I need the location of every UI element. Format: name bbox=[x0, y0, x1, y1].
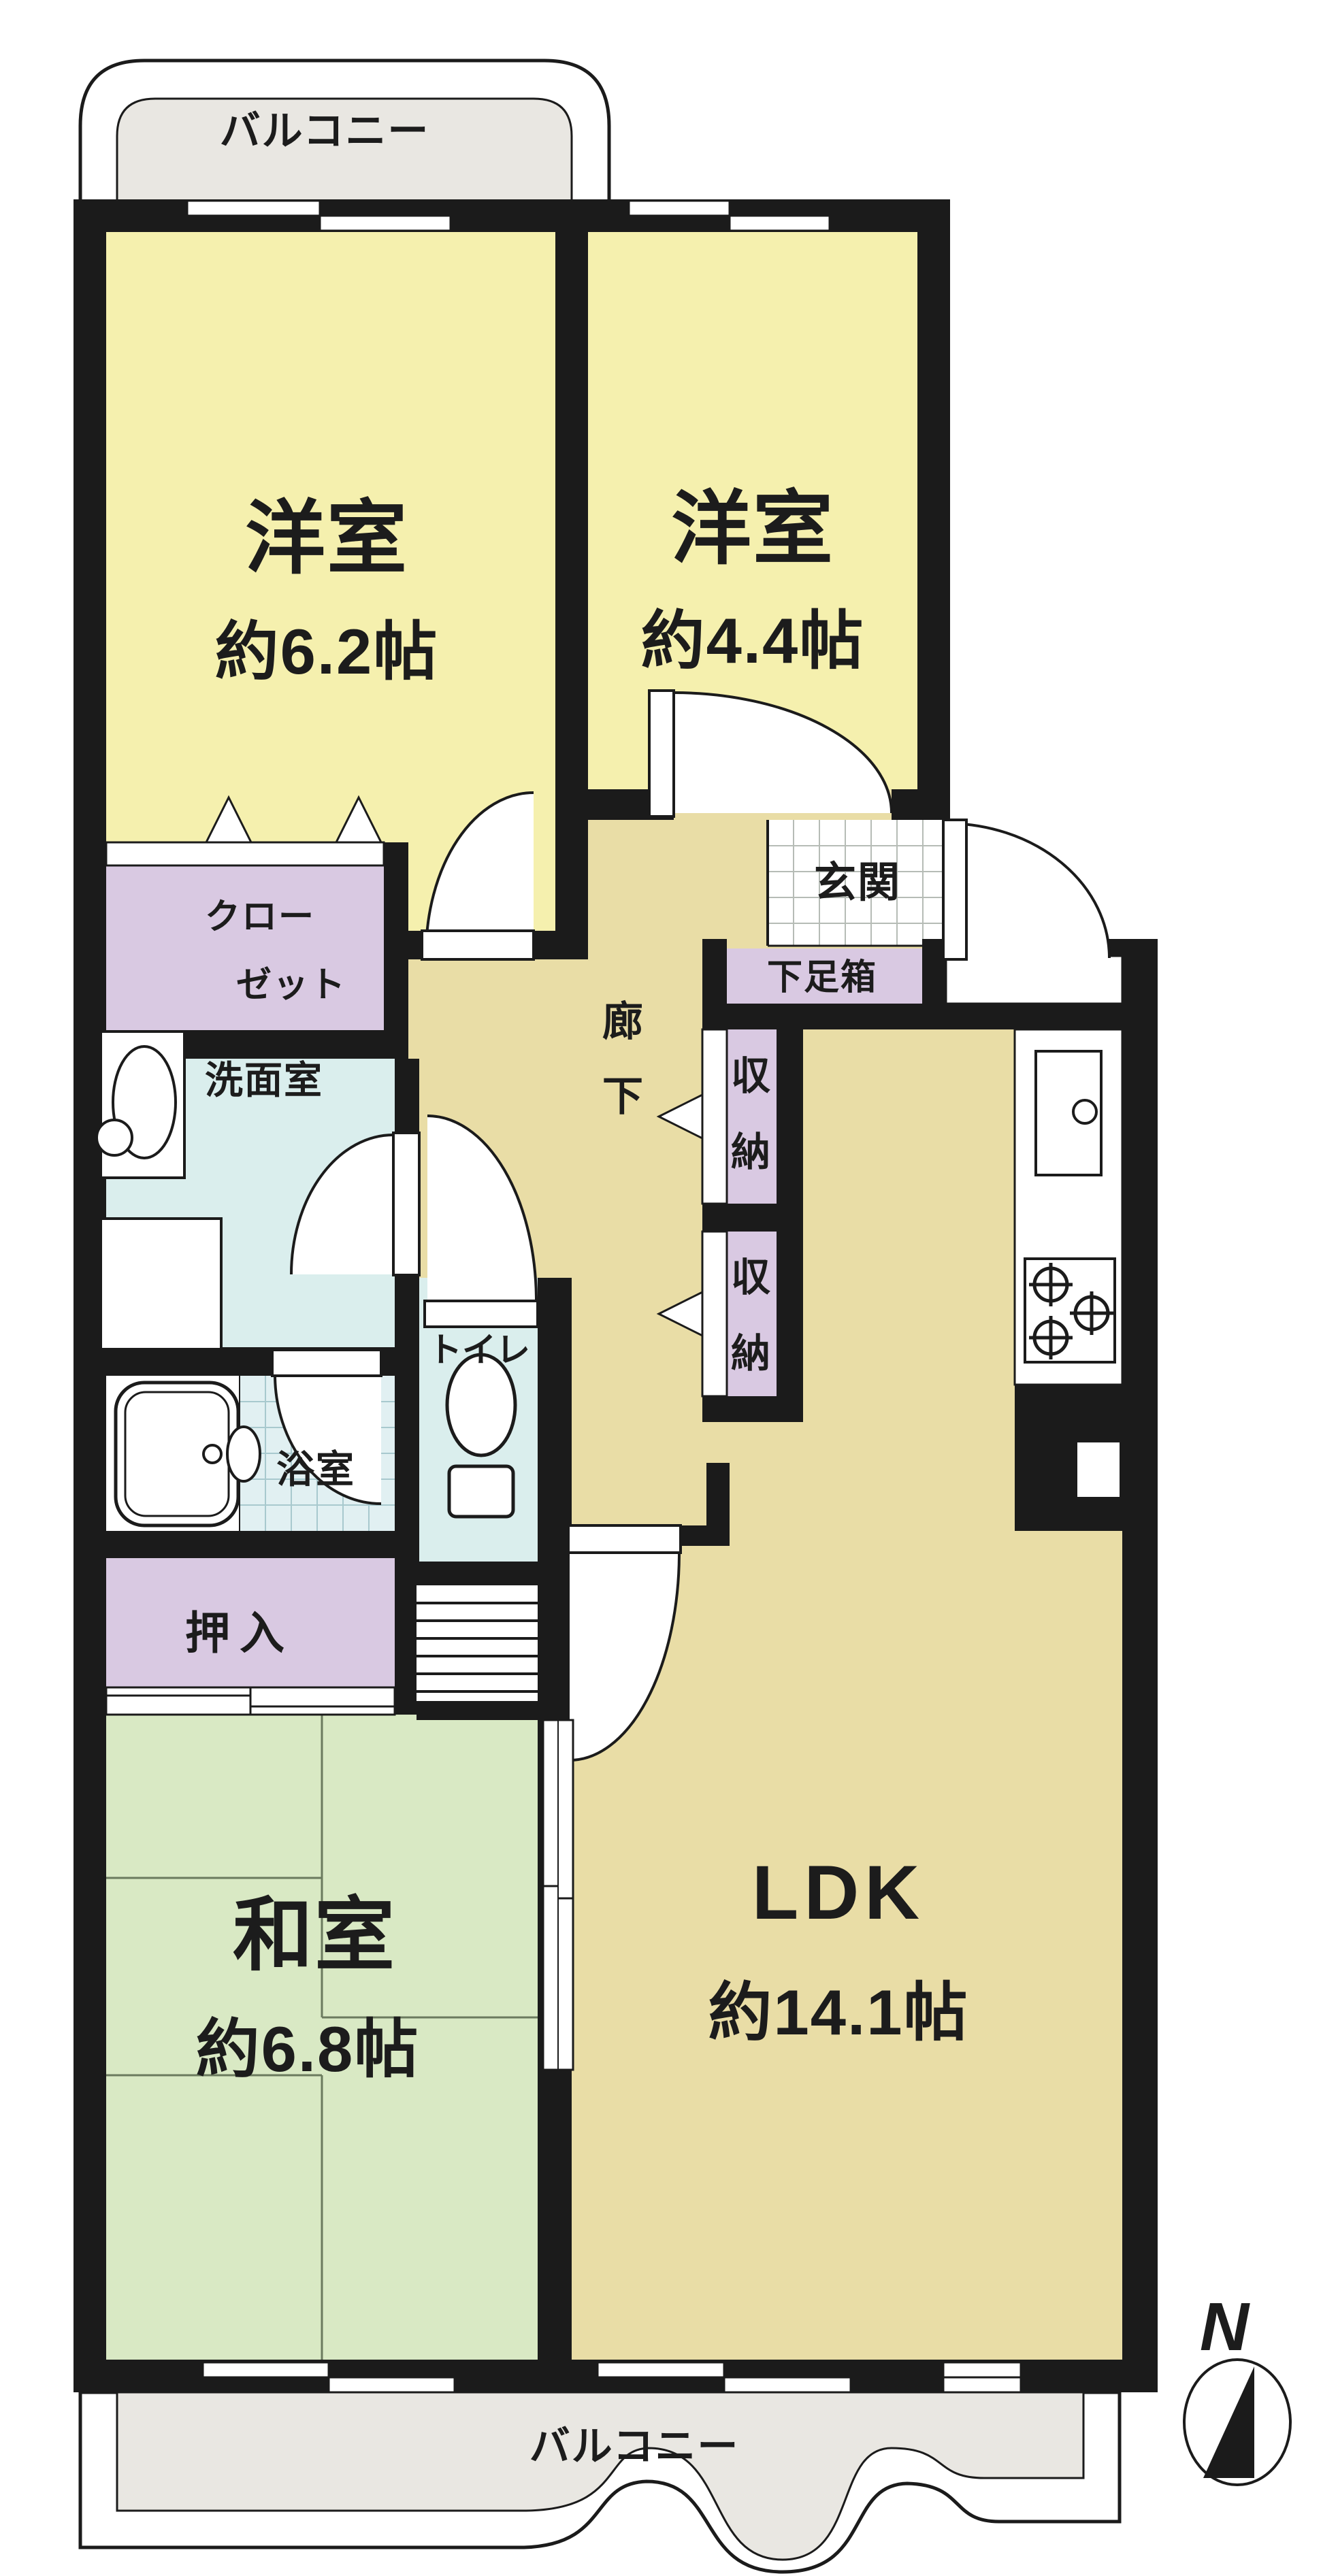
western1-area: 約6.2帖 bbox=[215, 620, 439, 684]
toilet-icon bbox=[447, 1355, 515, 1517]
shoebox-label: 下足箱 bbox=[767, 960, 877, 995]
service-hatch bbox=[1077, 1442, 1120, 1497]
door-leaf-toilet bbox=[425, 1301, 538, 1327]
stove-icon bbox=[1025, 1259, 1115, 1362]
door-leaf-entrance bbox=[943, 820, 966, 959]
exterior-area-right bbox=[1158, 0, 1338, 2576]
compass-icon bbox=[1184, 2360, 1290, 2485]
door-leaf-washroom bbox=[393, 1133, 419, 1275]
floorplan-drawing bbox=[0, 0, 1338, 2576]
washbasin-icon bbox=[97, 1031, 184, 1178]
corridor-label-1: 廊 bbox=[602, 1002, 644, 1042]
washroom-label: 洗面室 bbox=[205, 1061, 323, 1100]
door-leaf-western1 bbox=[422, 931, 534, 959]
compass-north-label: N bbox=[1200, 2293, 1250, 2361]
balcony-top-label: バルコニー bbox=[220, 111, 430, 152]
door-leaf-ldk bbox=[568, 1525, 681, 1553]
door-leaf-western2 bbox=[649, 691, 674, 816]
storage1-label-1: 収 bbox=[731, 1057, 772, 1096]
japanese-name: 和室 bbox=[233, 1896, 396, 1976]
storage1-label-2: 納 bbox=[731, 1133, 772, 1172]
corridor-label-2: 下 bbox=[602, 1076, 644, 1117]
bath-label: 浴室 bbox=[276, 1451, 355, 1489]
ldk-area: 約14.1帖 bbox=[708, 1981, 969, 2045]
balcony-bottom-label: バルコニー bbox=[529, 2426, 740, 2467]
washing-machine-icon bbox=[101, 1219, 221, 1349]
entrance-label: 玄関 bbox=[814, 862, 901, 904]
japanese-area: 約6.8帖 bbox=[196, 2017, 420, 2081]
kitchen-counter bbox=[1015, 1029, 1122, 1385]
floorplan: バルコニー 洋室 約6.2帖 洋室 約4.4帖 玄関 下足箱 クロー ゼット 洗… bbox=[0, 0, 1338, 2576]
balcony-bottom bbox=[80, 2392, 1120, 2572]
toilet-label: トイレ bbox=[428, 1333, 530, 1367]
door-leaf-bath bbox=[272, 1350, 381, 1376]
bathtub-icon bbox=[116, 1383, 260, 1525]
closet-label-1: クロー bbox=[205, 899, 315, 935]
western2-name: 洋室 bbox=[671, 489, 834, 569]
stairs bbox=[417, 1585, 538, 1704]
western2-area: 約4.4帖 bbox=[641, 609, 865, 673]
closet-label-2: ゼット bbox=[236, 968, 346, 1003]
western1-name: 洋室 bbox=[245, 499, 408, 579]
storage2-label-1: 収 bbox=[731, 1258, 772, 1298]
oshiire-label: 押入 bbox=[185, 1611, 294, 1655]
ldk-name: LDK bbox=[752, 1855, 925, 1931]
closet-floor bbox=[106, 865, 384, 1030]
entrance-porch bbox=[946, 956, 1122, 1004]
storage2-label-2: 納 bbox=[731, 1334, 772, 1374]
